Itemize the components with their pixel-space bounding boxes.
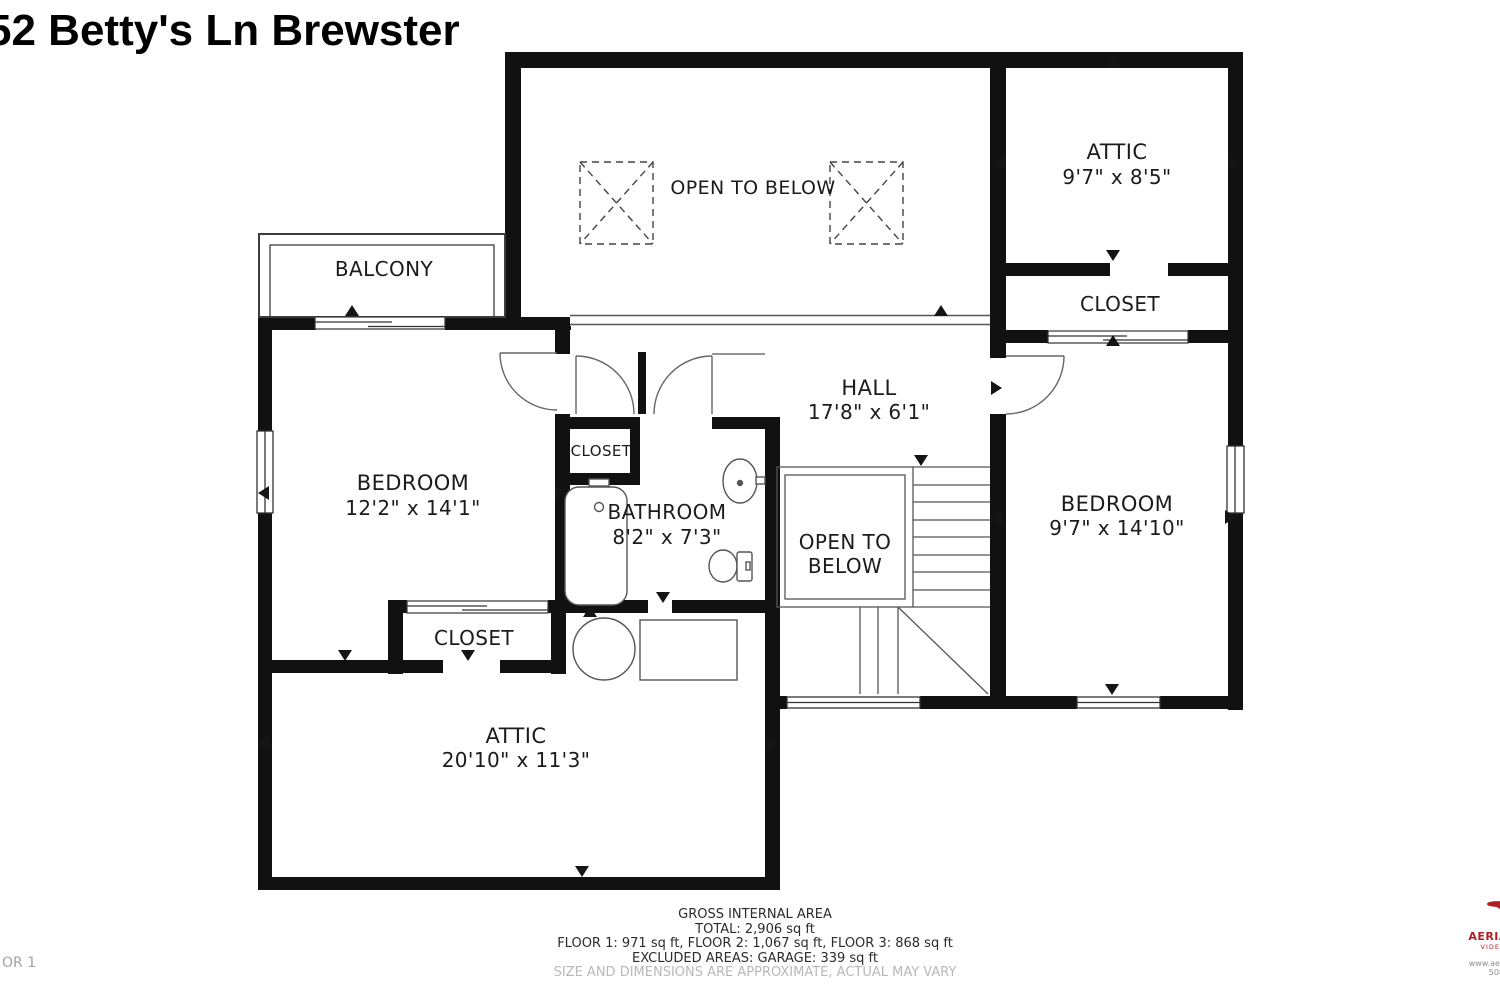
room-label-bathroom: BATHROOM xyxy=(608,500,727,524)
room-dims-attic-bottom: 20'10" x 11'3" xyxy=(442,748,591,772)
room-label-attic-bottom: ATTIC xyxy=(486,724,547,748)
logo-phone-text: 508-419-61 xyxy=(1438,968,1500,977)
vendor-logo: AERIAL ADVA VIDEO | PHOTO www.aerialadva… xyxy=(1438,897,1500,977)
toilet-bowl xyxy=(709,550,737,582)
door-swings xyxy=(500,353,1064,414)
room-label-open-to-below-stairs: OPEN TO BELOW xyxy=(779,530,911,578)
dresser xyxy=(640,620,737,680)
hall-railing xyxy=(570,314,990,354)
room-dims-hall: 17'8" x 6'1" xyxy=(808,400,930,424)
room-dims-bathroom: 8'2" x 7'3" xyxy=(612,525,721,549)
room-label-hall: HALL xyxy=(841,376,896,400)
open-to-below-skylight-boxes xyxy=(580,162,903,244)
floor-page-label: OR 1 xyxy=(2,955,36,971)
room-dims-attic-top-right: 9'7" x 8'5" xyxy=(1062,165,1171,189)
toilet-flush xyxy=(746,562,750,570)
fixtures xyxy=(565,459,765,680)
room-dims-bedroom-right: 9'7" x 14'10" xyxy=(1049,516,1185,540)
room-label-bedroom-left: BEDROOM xyxy=(357,471,469,495)
area-summary: GROSS INTERNAL AREA TOTAL: 2,906 sq ft F… xyxy=(405,908,1105,981)
logo-website-text: www.aerialadvantage xyxy=(1438,959,1500,968)
area-summary-heading: GROSS INTERNAL AREA xyxy=(405,908,1105,923)
area-summary-disclaimer: SIZE AND DIMENSIONS ARE APPROXIMATE, ACT… xyxy=(405,966,1105,981)
page-title: 52 Betty's Ln Brewster xyxy=(0,6,460,56)
room-label-closet-right: CLOSET xyxy=(1080,292,1160,316)
floorplan-page: 52 Betty's Ln Brewster ATTIC 9'7" x 8'5"… xyxy=(0,0,1500,1000)
area-summary-excluded: EXCLUDED AREAS: GARAGE: 339 sq ft xyxy=(405,952,1105,967)
drone-icon xyxy=(1487,897,1500,927)
floorplan-graphics xyxy=(0,0,1500,1000)
round-table xyxy=(573,618,635,680)
room-label-closet-center: CLOSET xyxy=(571,442,632,460)
sink-faucet xyxy=(756,477,765,484)
room-dims-bedroom-left: 12'2" x 14'1" xyxy=(345,496,481,520)
room-label-closet-bottom: CLOSET xyxy=(434,626,514,650)
tub-faucet xyxy=(589,479,609,486)
room-label-open-to-below-top: OPEN TO BELOW xyxy=(670,177,835,199)
room-label-balcony: BALCONY xyxy=(335,257,433,281)
tub-drain xyxy=(595,503,604,512)
area-summary-total: TOTAL: 2,906 sq ft xyxy=(405,923,1105,938)
staircase xyxy=(777,467,990,694)
logo-tagline-text: VIDEO | PHOTO xyxy=(1438,944,1500,951)
sink-drain xyxy=(738,481,743,486)
room-label-attic-top-right: ATTIC xyxy=(1087,140,1148,164)
room-label-bedroom-right: BEDROOM xyxy=(1061,492,1173,516)
area-summary-floors: FLOOR 1: 971 sq ft, FLOOR 2: 1,067 sq ft… xyxy=(405,937,1105,952)
